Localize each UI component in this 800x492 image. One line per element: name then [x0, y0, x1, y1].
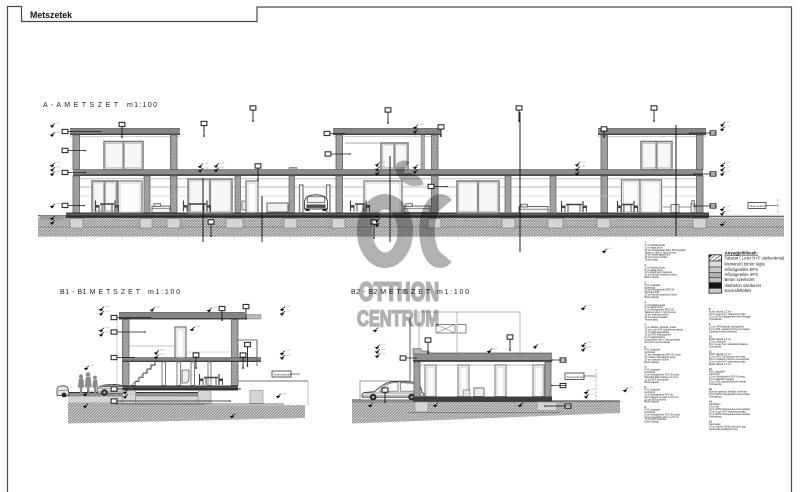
svg-text:B1 - B1 M E T S Z E T: B1 - B1 M E T S Z E T: [60, 289, 141, 296]
svg-text:+0,00: +0,00: [203, 167, 208, 169]
svg-text:+0,00: +0,00: [628, 387, 633, 389]
svg-text:+0,00: +0,00: [104, 327, 109, 329]
svg-text:+0,00: +0,00: [725, 122, 730, 124]
svg-text:+0,00: +0,00: [586, 342, 591, 344]
svg-text:+0,00: +0,00: [195, 326, 200, 328]
svg-text:Színezett nemesvakolat: Színezett nemesvakolat: [645, 341, 671, 344]
svg-text:Falazat ( Leier N+F vázkerámia: Falazat ( Leier N+F vázkerámia): [725, 256, 786, 261]
svg-text:+0,00: +0,00: [725, 171, 730, 173]
svg-text:Termett talaj: Termett talaj: [645, 259, 658, 262]
svg-text:+0,00: +0,00: [285, 306, 290, 308]
svg-text:Anyagjelölések:: Anyagjelölések:: [725, 250, 759, 255]
svg-text:+0,00: +0,00: [235, 413, 240, 415]
svg-text:+0,00: +0,00: [281, 393, 286, 395]
svg-text:+0,00: +0,00: [88, 391, 93, 393]
svg-text:Tereprendezés: Tereprendezés: [274, 372, 292, 376]
svg-text:+0,00: +0,00: [380, 162, 385, 164]
svg-text:Belső vakolat: Belső vakolat: [645, 276, 660, 279]
svg-text:+0,00: +0,00: [285, 310, 290, 312]
svg-text:Színvakolat: Színvakolat: [709, 345, 722, 348]
svg-text:+0,00: +0,00: [538, 344, 543, 346]
svg-text:+0,00: +0,00: [104, 306, 109, 308]
svg-text:+0,00: +0,00: [580, 166, 585, 168]
svg-text:+0,00: +0,00: [380, 217, 385, 219]
svg-text:Tereprendezés: Tereprendezés: [567, 375, 585, 379]
svg-text:+0,00: +0,00: [55, 219, 60, 221]
svg-text:+0,00: +0,00: [725, 210, 730, 212]
svg-text:Belső vakolat: Belső vakolat: [645, 381, 660, 384]
svg-text:+0,00: +0,00: [219, 167, 224, 169]
svg-text:Belső vakolat: Belső vakolat: [645, 296, 660, 299]
svg-text:+0,00: +0,00: [492, 348, 497, 350]
svg-text:+0,00: +0,00: [380, 348, 385, 350]
svg-text:+0,00: +0,00: [725, 221, 730, 223]
svg-text:+0,00: +0,00: [418, 164, 423, 166]
svg-text:+0,00: +0,00: [285, 354, 290, 356]
svg-text:+0,00: +0,00: [104, 310, 109, 312]
svg-text:+0,00: +0,00: [725, 162, 730, 164]
svg-text:+0,00: +0,00: [55, 132, 60, 134]
svg-text:Termett talaj: Termett talaj: [645, 319, 658, 322]
svg-text:Belső vakolat: Belső vakolat: [645, 361, 660, 364]
svg-text:Színvakolat: Színvakolat: [709, 415, 722, 418]
svg-text:OTTHON: OTTHON: [359, 277, 439, 307]
svg-text:+0,00: +0,00: [55, 123, 60, 125]
svg-text:+0,00: +0,00: [523, 402, 528, 404]
svg-text:Belső vakolat 1,5 cm: Belső vakolat 1,5 cm: [709, 363, 731, 366]
svg-text:+0,00: +0,00: [380, 222, 385, 224]
svg-text:+0,00: +0,00: [159, 354, 164, 356]
svg-text:+0,00: +0,00: [580, 162, 585, 164]
svg-text:+0,00: +0,00: [418, 168, 423, 170]
svg-text:m 1 : 1 0 0: m 1 : 1 0 0: [148, 289, 180, 296]
svg-text:+0,00: +0,00: [380, 213, 385, 215]
svg-text:Színvakolat: Színvakolat: [709, 396, 722, 399]
svg-text:+0,00: +0,00: [725, 126, 730, 128]
svg-text:+0,00: +0,00: [586, 346, 591, 348]
svg-text:+0,00: +0,00: [285, 350, 290, 352]
svg-text:Külső vakolat: Külső vakolat: [645, 421, 660, 424]
svg-text:+0,00: +0,00: [589, 393, 594, 395]
svg-text:+0,00: +0,00: [380, 353, 385, 355]
svg-text:+0,00: +0,00: [725, 166, 730, 168]
svg-text:+0,00: +0,00: [380, 166, 385, 168]
svg-text:+0,00: +0,00: [88, 403, 93, 405]
svg-text:+0,00: +0,00: [104, 331, 109, 333]
svg-text:+0,00: +0,00: [55, 203, 60, 205]
svg-text:Színvakolat: Színvakolat: [709, 383, 722, 386]
svg-text:+0,00: +0,00: [55, 171, 60, 173]
svg-text:+0,00: +0,00: [589, 389, 594, 391]
svg-text:+0,00: +0,00: [438, 402, 443, 404]
svg-text:+0,00: +0,00: [203, 163, 208, 165]
svg-text:+0,00: +0,00: [418, 124, 423, 126]
svg-text:+0,00: +0,00: [418, 128, 423, 130]
svg-text:Zárófólia felületerősítéssel: Zárófólia felületerősítéssel: [709, 330, 737, 333]
svg-text:+0,00: +0,00: [580, 170, 585, 172]
svg-text:+0,00: +0,00: [607, 248, 612, 250]
svg-text:Tereprendezés: Tereprendezés: [750, 204, 768, 208]
svg-text:Geotextília elválasztó réteg: Geotextília elválasztó réteg: [709, 428, 739, 431]
svg-text:A - A M E T S Z E T: A - A M E T S Z E T: [43, 102, 119, 109]
svg-text:+0,00: +0,00: [155, 307, 160, 309]
svg-text:m 1 : 1 0 0: m 1 : 1 0 0: [437, 289, 469, 296]
svg-text:+0,00: +0,00: [380, 170, 385, 172]
svg-text:Színvakolat: Színvakolat: [709, 318, 722, 321]
svg-text:+0,00: +0,00: [212, 307, 217, 309]
svg-text:+0,00: +0,00: [55, 162, 60, 164]
svg-text:+0,00: +0,00: [159, 350, 164, 352]
svg-text:+0,00: +0,00: [373, 402, 378, 404]
svg-text:+0,00: +0,00: [219, 163, 224, 165]
svg-text:Metszetek: Metszetek: [30, 10, 72, 20]
svg-text:Kavicsfeltöltés: Kavicsfeltöltés: [725, 288, 752, 293]
svg-text:+0,00: +0,00: [725, 206, 730, 208]
svg-text:+0,00: +0,00: [55, 215, 60, 217]
svg-text:+0,00: +0,00: [55, 166, 60, 168]
svg-text:m 1 : 1 0 0: m 1 : 1 0 0: [127, 102, 157, 109]
svg-text:+0,00: +0,00: [380, 344, 385, 346]
svg-text:CENTRUM: CENTRUM: [357, 307, 439, 332]
svg-text:Beton szerkezet: Beton szerkezet: [725, 277, 756, 282]
svg-text:+0,00: +0,00: [586, 305, 591, 307]
svg-text:+0,00: +0,00: [128, 393, 133, 395]
svg-text:+0,00: +0,00: [128, 389, 133, 391]
svg-text:Belső vakolat: Belső vakolat: [645, 401, 660, 404]
svg-text:kisméretű tömör tégla: kisméretű tömör tégla: [725, 262, 766, 267]
svg-text:+0,00: +0,00: [89, 365, 94, 367]
